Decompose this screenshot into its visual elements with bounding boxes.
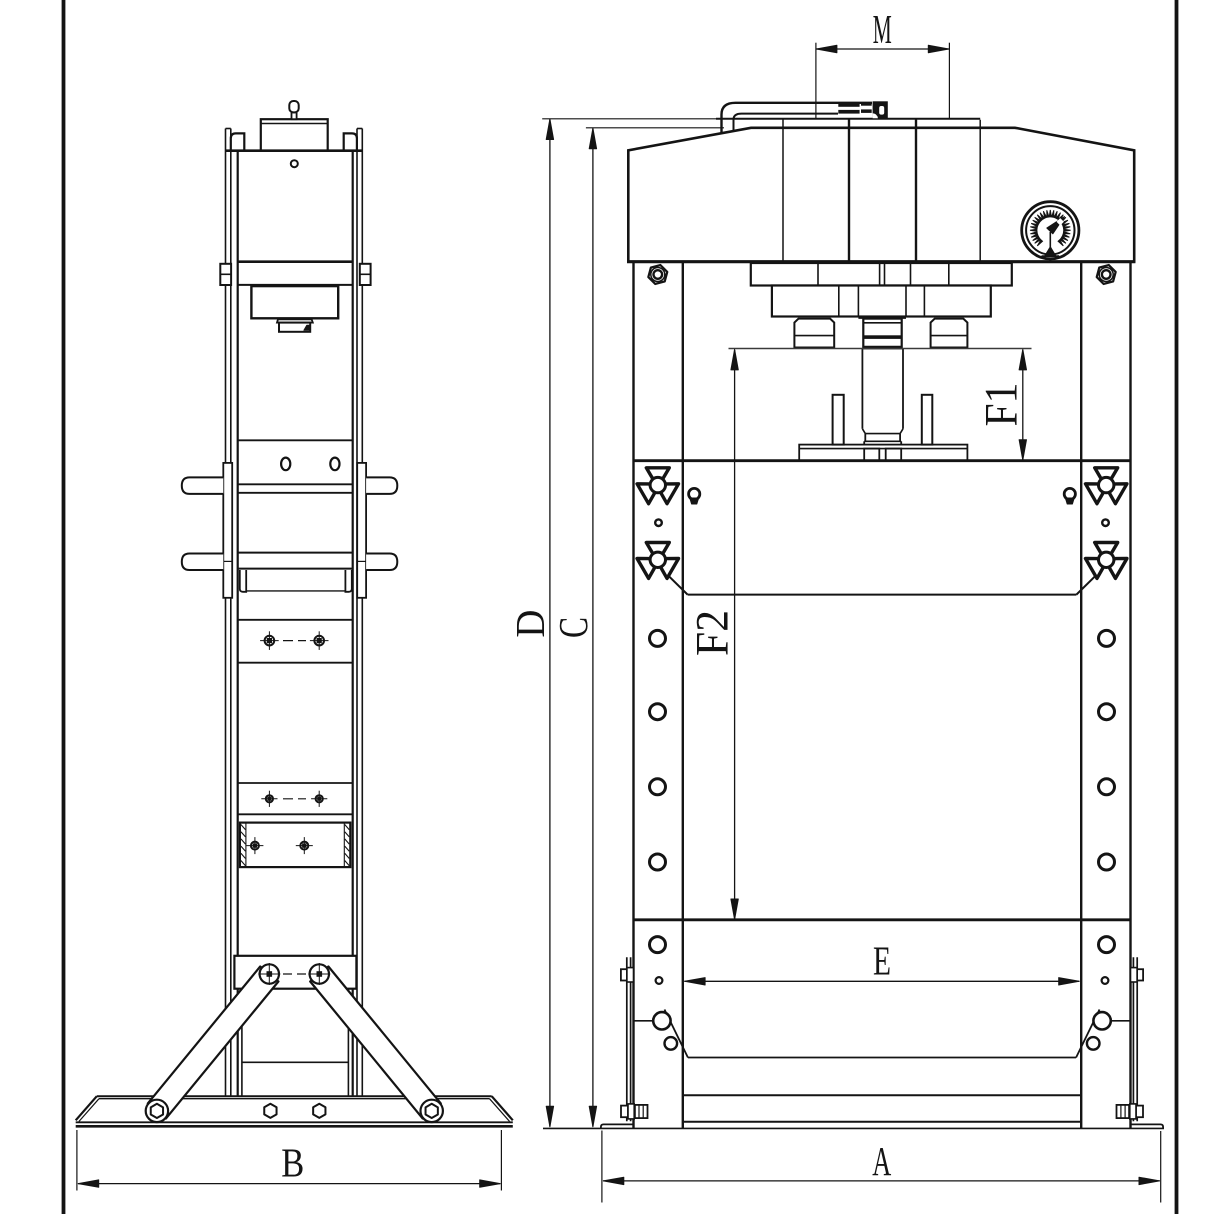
- svg-text:F1: F1: [976, 383, 1028, 427]
- svg-text:A: A: [872, 1138, 891, 1184]
- svg-text:B: B: [281, 1140, 304, 1186]
- svg-text:C: C: [550, 617, 596, 638]
- svg-text:M: M: [873, 6, 892, 52]
- svg-text:E: E: [873, 938, 891, 984]
- svg-text:F2: F2: [687, 610, 739, 656]
- svg-text:D: D: [507, 610, 553, 638]
